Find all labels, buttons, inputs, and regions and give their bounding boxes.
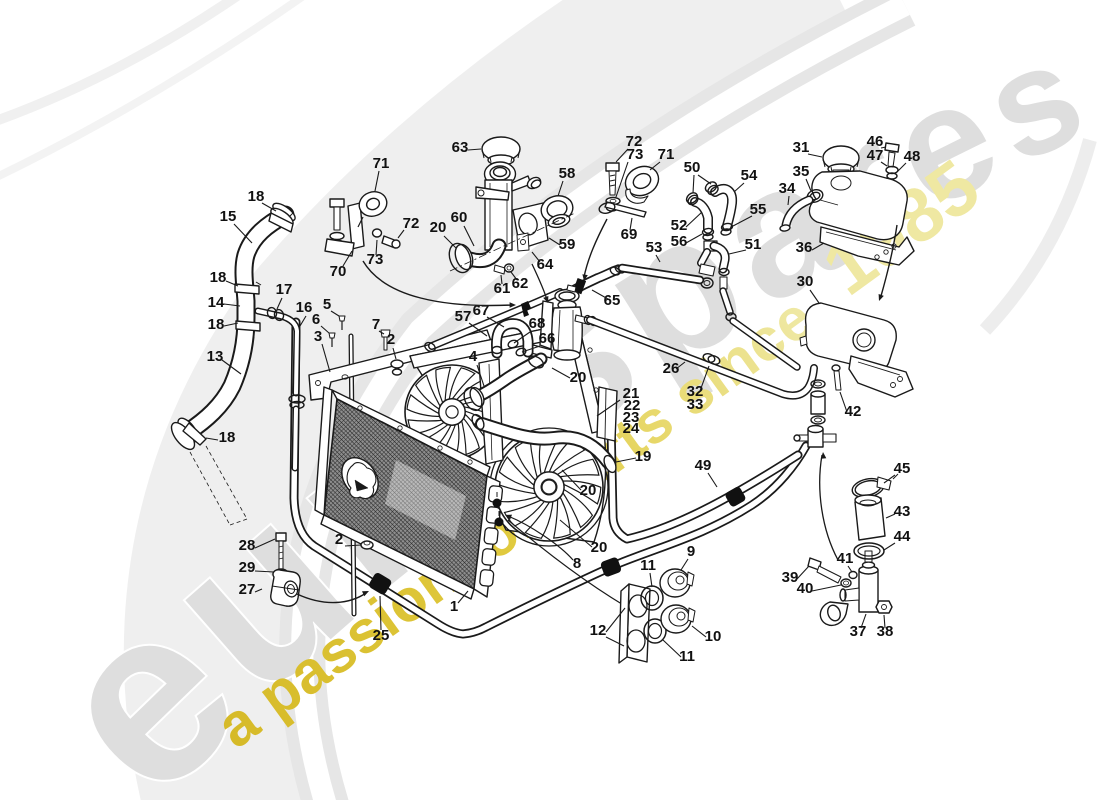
svg-text:43: 43 — [894, 503, 911, 520]
svg-text:64: 64 — [537, 256, 554, 273]
svg-text:10: 10 — [705, 628, 722, 645]
svg-text:24: 24 — [623, 420, 640, 437]
svg-text:30: 30 — [797, 273, 814, 290]
svg-text:31: 31 — [793, 139, 810, 156]
svg-text:35: 35 — [793, 163, 810, 180]
svg-text:60: 60 — [451, 209, 468, 226]
svg-text:73: 73 — [367, 251, 384, 268]
svg-text:18: 18 — [219, 429, 236, 446]
svg-text:16: 16 — [296, 299, 313, 316]
svg-text:8: 8 — [573, 555, 581, 572]
svg-text:48: 48 — [904, 148, 921, 165]
svg-text:19: 19 — [635, 448, 652, 465]
svg-text:11: 11 — [640, 557, 656, 574]
svg-text:62: 62 — [512, 275, 529, 292]
svg-text:4: 4 — [469, 348, 478, 365]
svg-text:20: 20 — [591, 539, 608, 556]
svg-text:3: 3 — [314, 328, 322, 345]
svg-text:6: 6 — [312, 311, 320, 328]
svg-text:13: 13 — [207, 348, 224, 365]
svg-text:28: 28 — [239, 537, 256, 554]
svg-text:18: 18 — [210, 269, 227, 286]
svg-text:9: 9 — [687, 543, 695, 560]
svg-text:65: 65 — [604, 292, 621, 309]
svg-text:63: 63 — [452, 139, 469, 156]
svg-text:72: 72 — [403, 215, 420, 232]
svg-text:5: 5 — [323, 296, 331, 313]
svg-text:17: 17 — [276, 281, 293, 298]
svg-text:20: 20 — [430, 219, 447, 236]
svg-text:47: 47 — [867, 147, 884, 164]
svg-text:34: 34 — [779, 180, 796, 197]
svg-text:44: 44 — [894, 528, 911, 545]
svg-text:49: 49 — [695, 457, 712, 474]
svg-text:66: 66 — [539, 330, 556, 347]
svg-text:33: 33 — [687, 396, 704, 413]
svg-text:53: 53 — [646, 239, 663, 256]
svg-text:51: 51 — [745, 236, 762, 253]
svg-text:20: 20 — [570, 369, 587, 386]
svg-text:1: 1 — [450, 598, 458, 615]
svg-text:12: 12 — [590, 622, 607, 639]
svg-text:59: 59 — [559, 236, 576, 253]
svg-text:55: 55 — [750, 201, 767, 218]
svg-text:2: 2 — [335, 531, 343, 548]
svg-text:7: 7 — [372, 316, 380, 333]
svg-text:20: 20 — [580, 482, 597, 499]
svg-text:71: 71 — [658, 146, 675, 163]
svg-text:18: 18 — [248, 188, 265, 205]
svg-text:54: 54 — [741, 167, 758, 184]
svg-text:29: 29 — [239, 559, 256, 576]
svg-text:58: 58 — [559, 165, 576, 182]
svg-text:27: 27 — [239, 581, 256, 598]
svg-text:37: 37 — [850, 623, 867, 640]
svg-text:69: 69 — [621, 226, 638, 243]
svg-text:45: 45 — [894, 460, 911, 477]
svg-text:41: 41 — [837, 550, 854, 567]
svg-text:40: 40 — [797, 580, 814, 597]
svg-text:14: 14 — [208, 294, 225, 311]
svg-text:18: 18 — [208, 316, 225, 333]
svg-text:52: 52 — [671, 217, 688, 234]
svg-text:73: 73 — [627, 146, 644, 163]
svg-text:2: 2 — [387, 331, 395, 348]
svg-text:57: 57 — [455, 308, 472, 325]
svg-text:15: 15 — [220, 208, 237, 225]
svg-text:71: 71 — [373, 155, 390, 172]
svg-text:50: 50 — [684, 159, 701, 176]
svg-text:56: 56 — [671, 233, 688, 250]
svg-text:36: 36 — [796, 239, 813, 256]
svg-text:11: 11 — [679, 648, 695, 665]
